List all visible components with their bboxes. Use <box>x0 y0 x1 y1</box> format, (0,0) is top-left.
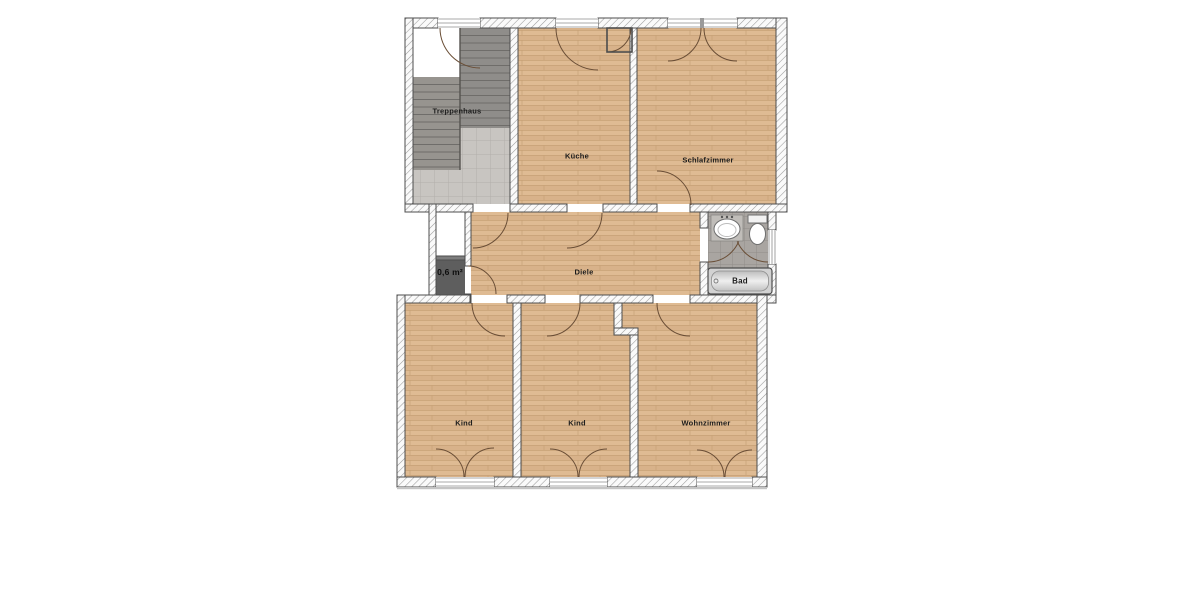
wall <box>507 295 545 303</box>
room-label-abstellraum: 0,6 m² <box>437 267 463 277</box>
wall <box>510 204 567 212</box>
stair-landing-floor <box>413 28 460 77</box>
window <box>550 477 607 487</box>
wall <box>397 295 405 487</box>
wall <box>429 204 436 303</box>
stair-tile-floor <box>460 128 512 204</box>
room-label-diele: Diele <box>575 268 594 277</box>
window <box>438 18 480 28</box>
wall <box>510 28 518 212</box>
room-label-kind-mitte: Kind <box>568 419 585 428</box>
wall <box>630 335 638 477</box>
window <box>668 18 737 28</box>
wall <box>480 18 556 28</box>
void-space <box>436 212 465 257</box>
wall-thin <box>436 256 465 260</box>
wall <box>607 477 697 487</box>
wall <box>580 295 653 303</box>
sink-tap <box>721 216 723 218</box>
floorplan-page: Treppenhaus Küche Schlafzimmer Diele 0,6… <box>0 0 1200 600</box>
floorplan-drawing <box>0 0 1200 600</box>
window <box>768 230 776 264</box>
wall <box>405 18 413 212</box>
floors <box>405 28 776 477</box>
wall <box>757 295 767 487</box>
wall <box>465 212 471 266</box>
room-label-kueche: Küche <box>565 152 589 161</box>
wall <box>690 204 787 212</box>
room-label-wohnzimmer: Wohnzimmer <box>682 419 731 428</box>
toilet-tank <box>748 215 767 223</box>
room-label-treppenhaus: Treppenhaus <box>433 107 482 116</box>
wall <box>630 28 637 212</box>
wall <box>397 477 436 487</box>
room-label-bad: Bad <box>732 277 748 286</box>
wohnzimmer-floor <box>622 303 757 477</box>
wall <box>603 204 657 212</box>
wall <box>494 477 550 487</box>
wall <box>397 295 470 303</box>
kind-links-floor <box>405 303 513 477</box>
wall <box>752 477 767 487</box>
sink-tap <box>731 216 733 218</box>
schlafzimmer-floor <box>637 28 776 204</box>
room-label-schlafzimmer: Schlafzimmer <box>682 156 733 165</box>
window <box>436 477 494 487</box>
wall <box>513 303 521 477</box>
kueche-floor <box>518 28 630 204</box>
stairs-icon <box>413 77 460 170</box>
wall <box>700 212 708 228</box>
room-label-kind-links: Kind <box>455 419 472 428</box>
wall <box>614 328 638 335</box>
toilet-icon <box>750 224 766 245</box>
sink-tap <box>726 216 728 218</box>
wall <box>405 204 473 212</box>
wall <box>598 18 668 28</box>
window <box>556 18 598 28</box>
stair-tile-floor <box>413 170 460 204</box>
wall-shadow <box>397 487 767 489</box>
wall <box>768 212 776 230</box>
diele-floor <box>471 212 700 295</box>
abstellraum-floor <box>436 260 465 295</box>
window <box>697 477 752 487</box>
wall <box>776 18 787 212</box>
